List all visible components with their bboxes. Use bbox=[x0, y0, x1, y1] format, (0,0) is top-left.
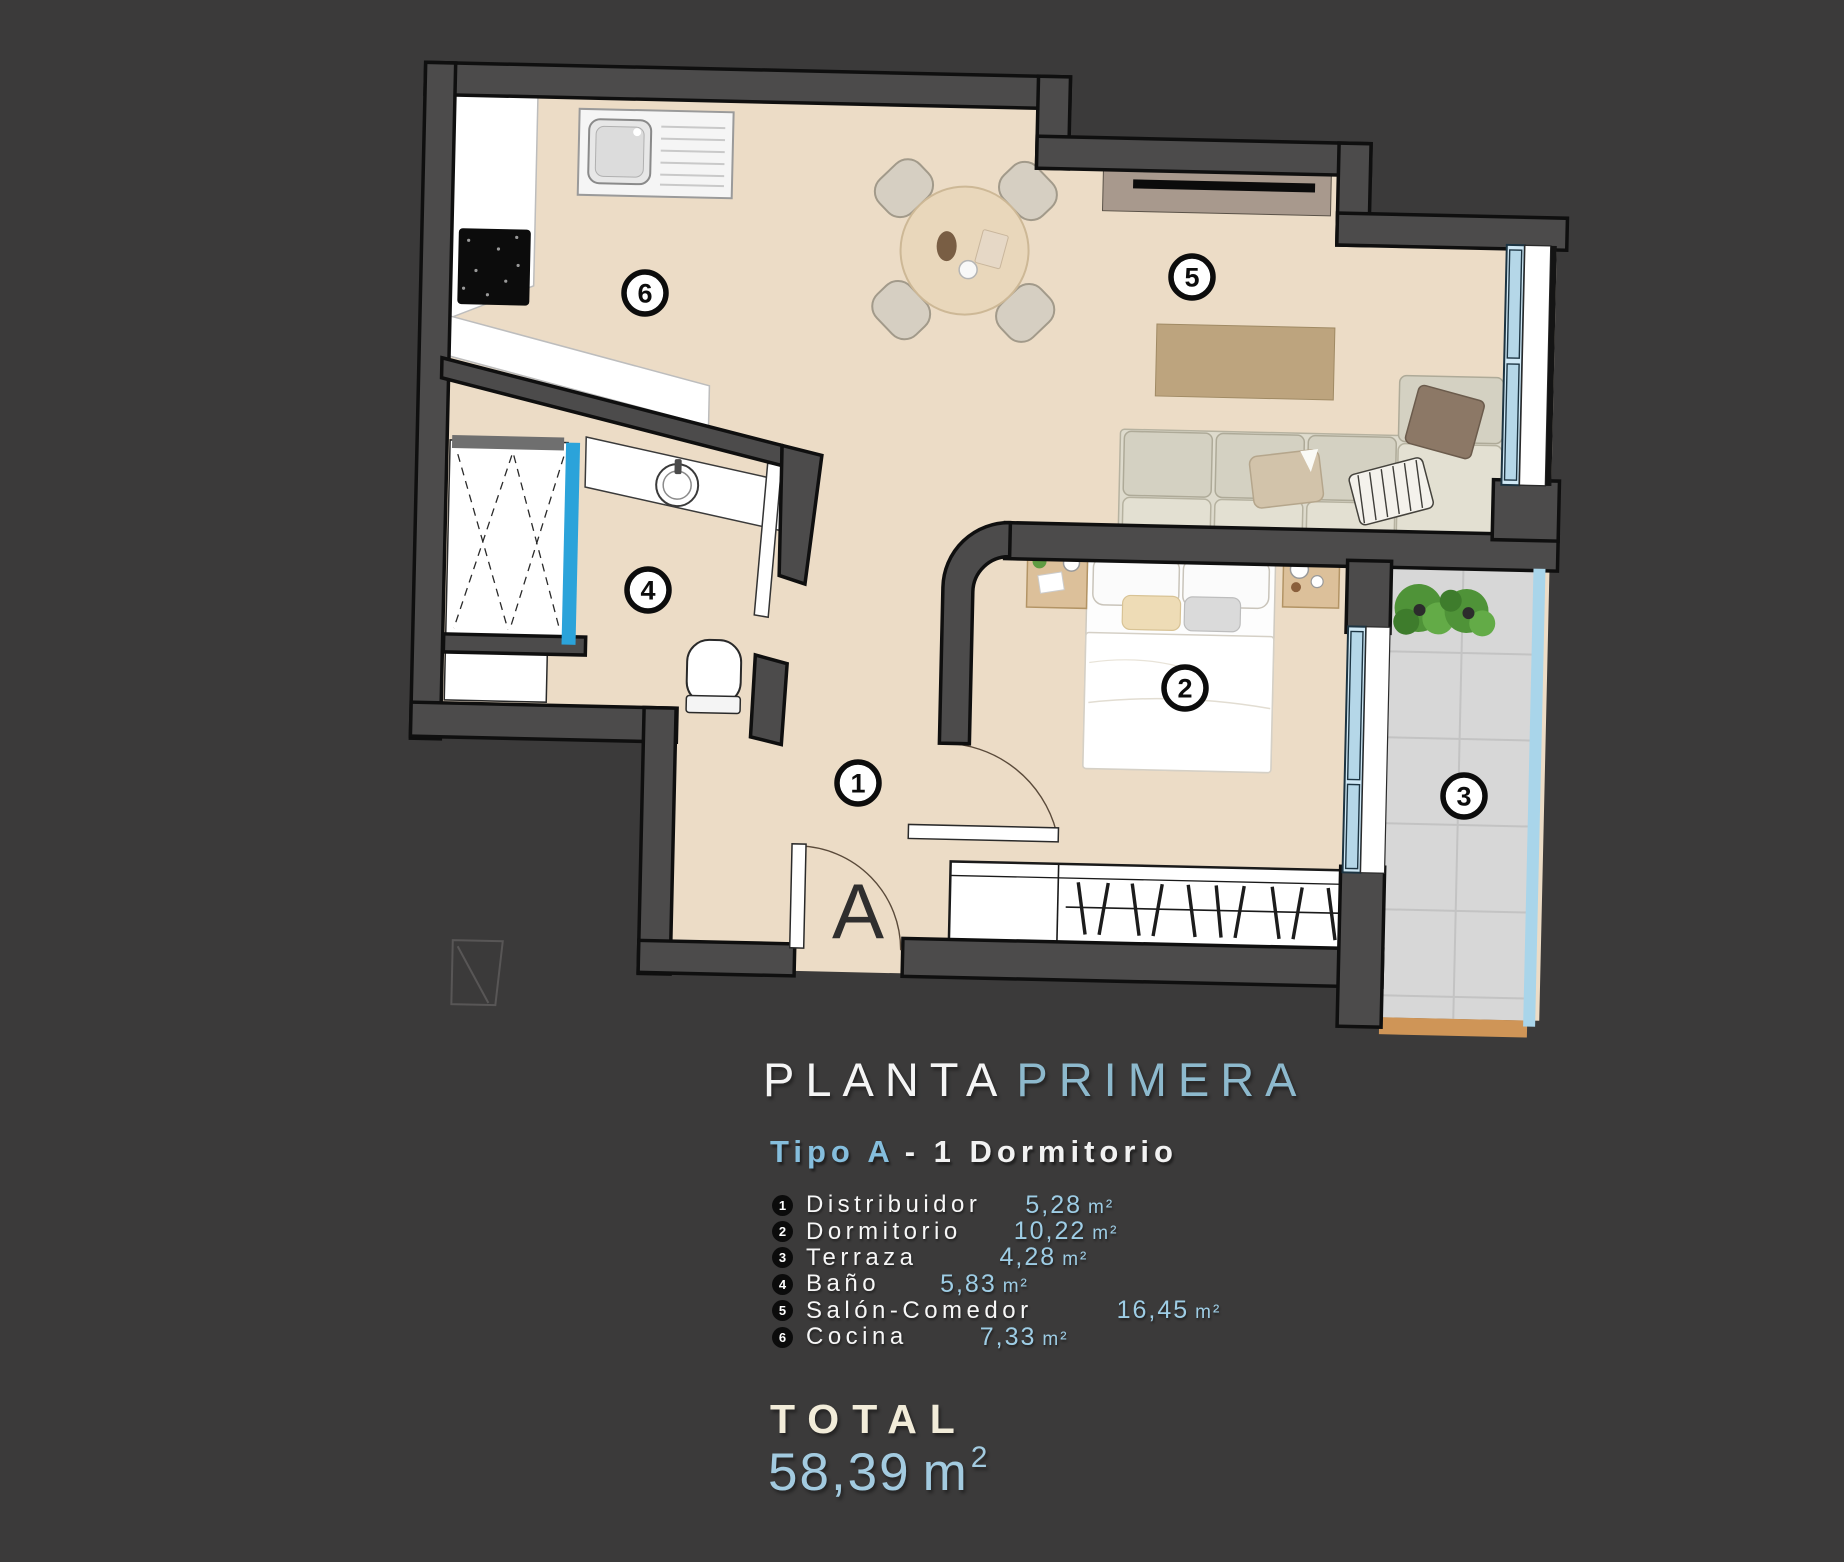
wardrobe bbox=[949, 861, 1379, 949]
bedroom-door-leaf bbox=[908, 824, 1058, 841]
bedroom-slider-window bbox=[1343, 626, 1391, 873]
plan-badge-6: 6 bbox=[624, 272, 666, 314]
plan-badge-5: 5 bbox=[1171, 256, 1213, 298]
pillow-cream bbox=[1122, 595, 1181, 630]
entrance-door-leaf bbox=[790, 844, 806, 948]
terrace-wood-edge bbox=[1379, 1017, 1527, 1037]
page: 1 2 3 4 5 6 A PLANTAPRIMERA Tipo A- 1 Do… bbox=[0, 0, 1844, 1562]
table-cup bbox=[959, 260, 977, 278]
shower-head-bar bbox=[452, 435, 564, 451]
svg-text:5: 5 bbox=[1184, 263, 1199, 293]
floor-plan-rotated-group bbox=[404, 62, 1570, 1038]
plan-badge-4: 4 bbox=[627, 569, 669, 611]
bathroom-niche bbox=[444, 652, 547, 702]
bed bbox=[1083, 550, 1276, 772]
sofa-pillow-beige bbox=[1249, 449, 1325, 509]
living-room-window bbox=[1501, 245, 1556, 486]
entrance-label: A bbox=[832, 867, 884, 955]
svg-text:3: 3 bbox=[1456, 782, 1471, 812]
svg-text:4: 4 bbox=[640, 576, 655, 606]
plan-badge-3: 3 bbox=[1443, 775, 1485, 817]
washbasin-faucet bbox=[674, 459, 681, 474]
svg-text:6: 6 bbox=[637, 279, 652, 309]
svg-text:2: 2 bbox=[1177, 674, 1192, 704]
pillow-gray bbox=[1184, 597, 1241, 632]
ghost-outline bbox=[451, 940, 502, 1005]
kitchen-sink-unit bbox=[578, 109, 734, 198]
svg-text:1: 1 bbox=[850, 769, 865, 799]
dining-table bbox=[899, 185, 1030, 316]
plan-badge-1: 1 bbox=[837, 762, 879, 804]
rug bbox=[1155, 324, 1335, 400]
floor-plan: 1 2 3 4 5 6 A bbox=[0, 0, 1844, 1562]
plan-badge-2: 2 bbox=[1164, 667, 1206, 709]
toilet bbox=[686, 639, 742, 713]
